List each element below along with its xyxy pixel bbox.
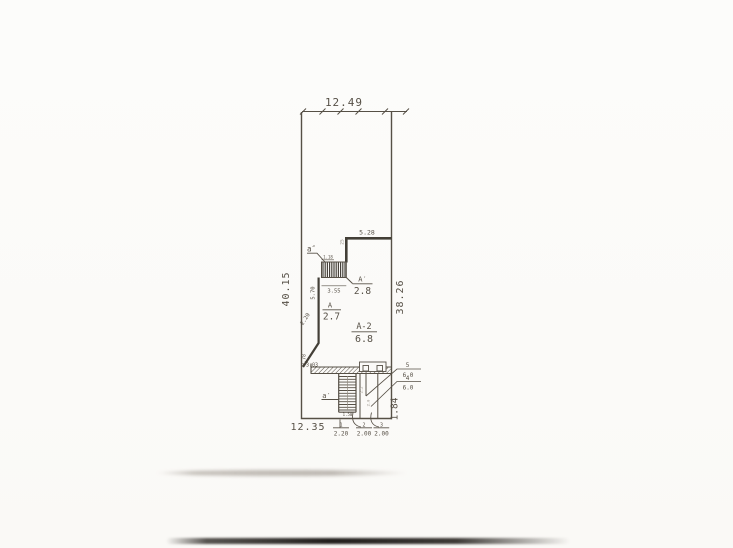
dim-right-height: 38.26 bbox=[395, 279, 406, 314]
side-mark-2-value: 6.0 bbox=[403, 384, 414, 391]
dim-upper-stair-run: 3.55 bbox=[327, 289, 340, 295]
scan-smudge bbox=[156, 470, 408, 476]
floor-plan-drawing: 12.49 40.15 38.26 5.28 25 1.18 a″ 3.55 5… bbox=[0, 0, 733, 548]
bottom-mark-3-num: 3 bbox=[380, 423, 383, 429]
bottom-mark-3-value: 2.00 bbox=[374, 431, 389, 438]
scan-edge-shadow bbox=[166, 538, 570, 544]
bottom-mark-2-value: 2.00 bbox=[357, 431, 372, 438]
room-aprime-name: A′ bbox=[358, 276, 366, 284]
dim-inner-wall-top: 5.28 bbox=[359, 229, 375, 237]
bottom-mark-1-num: 1 bbox=[339, 423, 342, 429]
interior-mark-1: 2.2 bbox=[359, 387, 364, 394]
lower-partitions bbox=[360, 374, 378, 419]
upper-stair-label: a″ bbox=[307, 245, 316, 254]
dim-left-height: 40.15 bbox=[281, 271, 292, 306]
dim-lower-stair-width: 1.50 bbox=[343, 412, 353, 417]
bottom-mark-1-value: 2.20 bbox=[334, 431, 349, 438]
dim-top-width: 12.49 bbox=[325, 96, 363, 109]
dim-wall-thickness: 25 bbox=[340, 239, 346, 245]
room-aprime-value: 2.8 bbox=[354, 286, 371, 297]
upper-stair-treads bbox=[323, 263, 345, 278]
dim-lower-offset: 3.03 bbox=[306, 363, 318, 369]
room-a2-name: A-2 bbox=[356, 322, 371, 332]
side-mark-2-num: 4 bbox=[406, 375, 410, 382]
inner-wall-chamfer bbox=[346, 278, 352, 284]
dim-left-inner-wall: 5.70 bbox=[311, 286, 317, 299]
bottom-mark-2-num: 2 bbox=[362, 423, 365, 429]
lower-stair-label: a′ bbox=[322, 392, 330, 400]
dim-upper-stair-width: 1.18 bbox=[323, 255, 333, 260]
room-a-name: A bbox=[328, 302, 333, 310]
dim-right-lower-height: 1.84 bbox=[390, 397, 401, 420]
room-a-value: 2.7 bbox=[323, 312, 340, 323]
scanned-floor-plan-page: 12.49 40.15 38.26 5.28 25 1.18 a″ 3.55 5… bbox=[0, 0, 733, 548]
room-a2-value: 6.8 bbox=[355, 334, 373, 345]
inner-top-wall bbox=[346, 237, 391, 263]
interior-mark-2: 2.0 bbox=[366, 399, 371, 407]
fixture-symbol bbox=[360, 362, 387, 372]
side-mark-1-num: 5 bbox=[406, 362, 410, 369]
dim-bottom-width: 12.35 bbox=[290, 422, 325, 433]
